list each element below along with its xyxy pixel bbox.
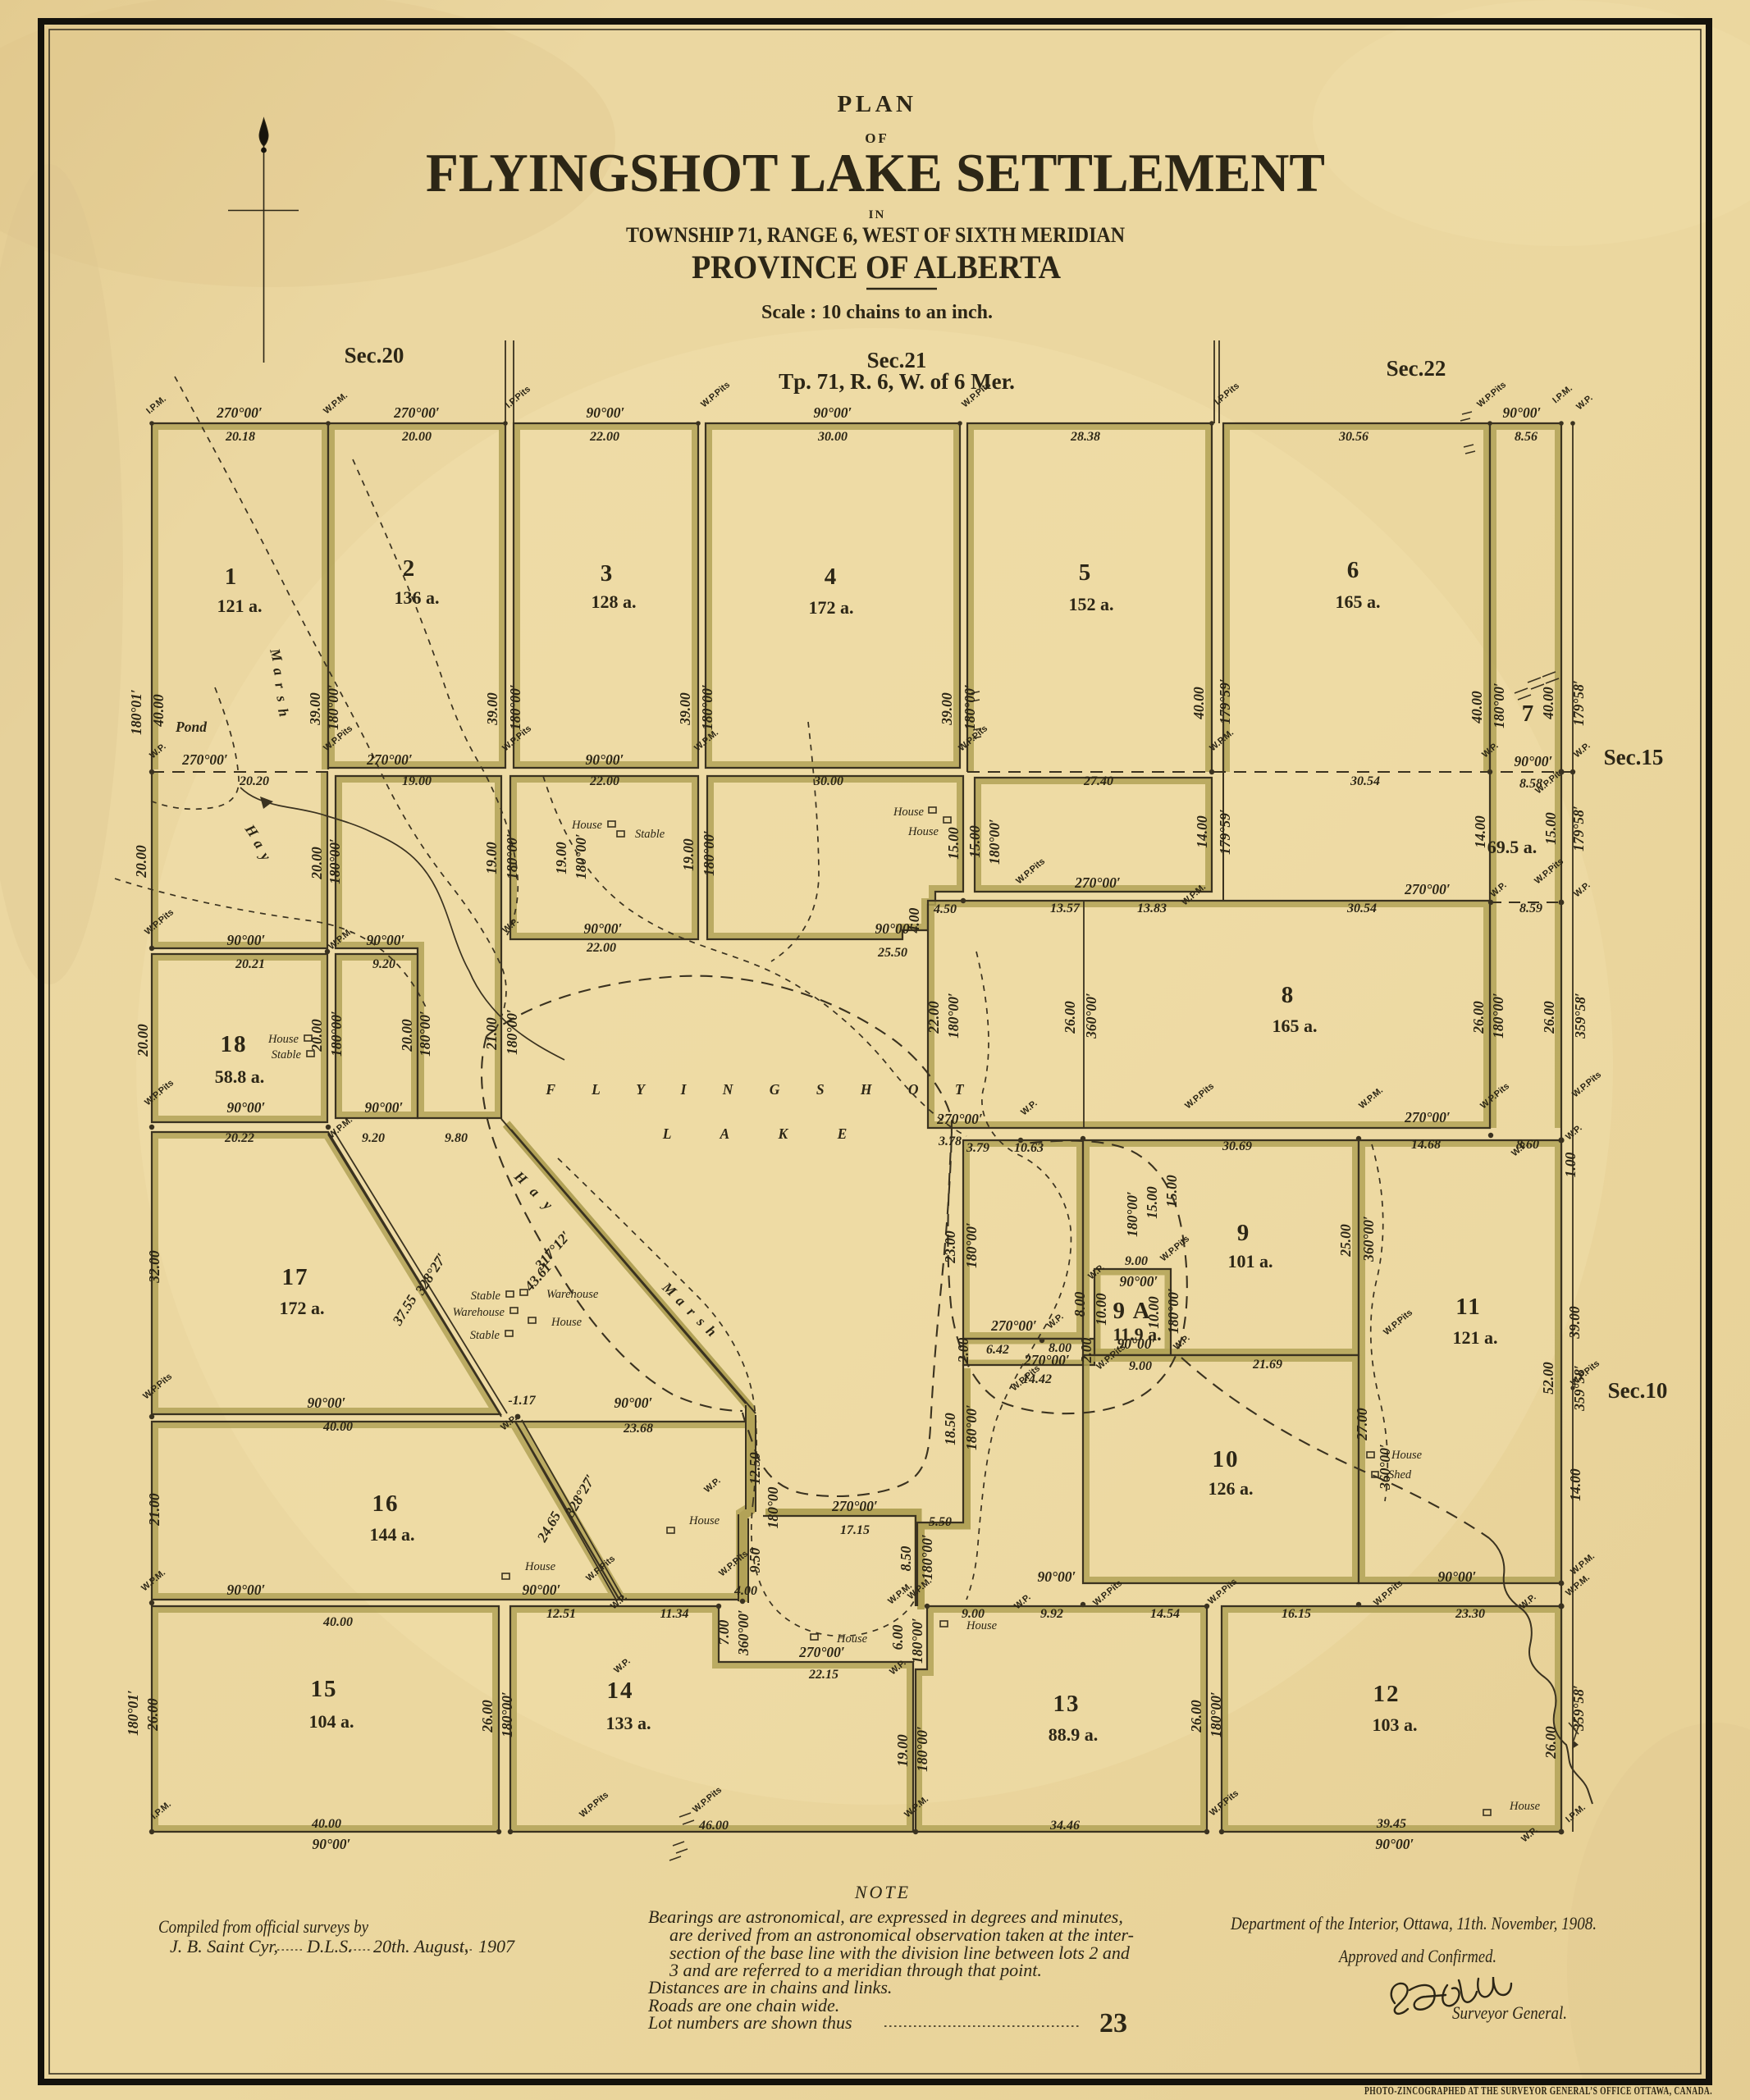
svg-text:19.00: 19.00 xyxy=(894,1734,911,1767)
svg-text:1.00: 1.00 xyxy=(1562,1152,1579,1177)
svg-text:6.00: 6.00 xyxy=(889,1624,906,1650)
svg-text:90°00′: 90°00′ xyxy=(584,920,623,937)
svg-text:90°00′: 90°00′ xyxy=(586,751,624,768)
svg-text:5.50: 5.50 xyxy=(929,1515,952,1529)
svg-text:90°00′: 90°00′ xyxy=(587,404,625,421)
svg-text:180°00′: 180°00′ xyxy=(1165,1288,1181,1334)
svg-text:360°00′: 360°00′ xyxy=(1083,993,1099,1039)
svg-text:25.00: 25.00 xyxy=(1337,1224,1354,1258)
svg-text:15.00: 15.00 xyxy=(945,827,962,860)
svg-text:270°00′: 270°00′ xyxy=(990,1317,1037,1334)
svg-text:9.50: 9.50 xyxy=(747,1547,763,1573)
svg-text:Scale : 10 chains to an inch.: Scale : 10 chains to an inch. xyxy=(761,302,993,323)
svg-text:15.00: 15.00 xyxy=(1542,812,1559,845)
svg-text:26.00: 26.00 xyxy=(1188,1700,1204,1733)
svg-text:180°00′: 180°00′ xyxy=(507,684,523,730)
svg-text:40.00: 40.00 xyxy=(311,1817,341,1831)
svg-text:90°00′: 90°00′ xyxy=(1038,1568,1076,1585)
svg-text:20.00: 20.00 xyxy=(308,847,325,880)
svg-text:39.00: 39.00 xyxy=(939,692,955,726)
svg-text:3.79: 3.79 xyxy=(966,1141,989,1155)
svg-text:360°00′: 360°00′ xyxy=(735,1609,752,1656)
svg-text:180°00′: 180°00′ xyxy=(919,1534,935,1580)
svg-text:180°00′: 180°00′ xyxy=(327,838,343,884)
svg-text:270°00′: 270°00′ xyxy=(216,404,263,421)
svg-text:90°00′: 90°00′ xyxy=(814,404,852,421)
svg-text:8.00: 8.00 xyxy=(1071,1291,1088,1317)
svg-text:34.46: 34.46 xyxy=(1049,1819,1080,1833)
svg-text:180°00′: 180°00′ xyxy=(1124,1191,1140,1237)
svg-text:26.00: 26.00 xyxy=(1541,1001,1557,1034)
svg-text:23.30: 23.30 xyxy=(1455,1607,1485,1621)
svg-text:26.00: 26.00 xyxy=(479,1700,496,1733)
svg-text:90°00′: 90°00′ xyxy=(227,1099,266,1116)
svg-text:8.50: 8.50 xyxy=(898,1545,914,1571)
svg-text:House: House xyxy=(836,1632,868,1646)
svg-text:180°00′: 180°00′ xyxy=(914,1726,930,1772)
svg-text:FLYINGSHOT LAKE SETTLEMENT: FLYINGSHOT LAKE SETTLEMENT xyxy=(426,143,1325,203)
svg-text:23.00: 23.00 xyxy=(942,1230,958,1264)
svg-text:39.00: 39.00 xyxy=(1566,1306,1583,1340)
svg-text:5: 5 xyxy=(1079,559,1093,586)
svg-text:20.21: 20.21 xyxy=(235,957,265,971)
svg-text:Stable: Stable xyxy=(635,828,665,841)
svg-text:19.00: 19.00 xyxy=(483,842,500,874)
svg-text:270°00′: 270°00′ xyxy=(1074,874,1121,891)
svg-text:90°00′: 90°00′ xyxy=(1503,404,1542,421)
svg-text:40.00: 40.00 xyxy=(150,694,167,728)
svg-text:180°00′: 180°00′ xyxy=(1490,993,1506,1039)
svg-text:39.00: 39.00 xyxy=(307,692,323,726)
svg-text:PLAN: PLAN xyxy=(838,91,917,117)
svg-text:3.78: 3.78 xyxy=(938,1134,962,1148)
svg-text:7: 7 xyxy=(1522,701,1536,727)
svg-text:9.20: 9.20 xyxy=(362,1131,385,1145)
svg-text:360°00′: 360°00′ xyxy=(1377,1444,1393,1491)
svg-text:270°00′: 270°00′ xyxy=(936,1111,983,1127)
svg-text:Warehouse: Warehouse xyxy=(453,1306,505,1319)
svg-text:126 a.: 126 a. xyxy=(1209,1478,1254,1499)
svg-text:88.9 a.: 88.9 a. xyxy=(1049,1724,1099,1745)
svg-text:17.15: 17.15 xyxy=(840,1523,870,1537)
svg-text:Sec.15: Sec.15 xyxy=(1604,745,1664,769)
svg-text:1: 1 xyxy=(225,564,239,590)
svg-text:26.00: 26.00 xyxy=(1542,1726,1559,1760)
svg-text:180°00′: 180°00′ xyxy=(573,833,589,879)
svg-text:21.00: 21.00 xyxy=(146,1493,162,1527)
svg-text:L A K E: L A K E xyxy=(662,1125,870,1142)
svg-text:Surveyor General.: Surveyor General. xyxy=(1452,2002,1567,2023)
svg-text:180°00′: 180°00′ xyxy=(499,1691,515,1737)
svg-text:180°00′: 180°00′ xyxy=(417,1011,433,1057)
svg-text:House: House xyxy=(966,1619,998,1632)
svg-text:2.00: 2.00 xyxy=(955,1337,971,1363)
svg-text:152 a.: 152 a. xyxy=(1069,594,1114,614)
svg-text:180°00′: 180°00′ xyxy=(1491,682,1507,728)
svg-text:270°00′: 270°00′ xyxy=(181,751,228,768)
svg-text:15.00: 15.00 xyxy=(1163,1175,1180,1207)
svg-text:40.00: 40.00 xyxy=(322,1420,353,1434)
svg-text:22.15: 22.15 xyxy=(808,1668,838,1682)
svg-text:58.8 a.: 58.8 a. xyxy=(215,1066,265,1087)
svg-text:Department of the Interior, Ot: Department of the Interior, Ottawa, 11th… xyxy=(1230,1913,1597,1933)
svg-text:270°00′: 270°00′ xyxy=(1023,1352,1070,1368)
svg-text:180°00′: 180°00′ xyxy=(962,684,978,730)
svg-text:4.50: 4.50 xyxy=(933,902,957,916)
svg-text:39.00: 39.00 xyxy=(484,692,500,726)
svg-text:180°00′: 180°00′ xyxy=(963,1222,980,1268)
svg-text:90°00′: 90°00′ xyxy=(365,1099,404,1116)
svg-text:House: House xyxy=(1391,1449,1423,1462)
svg-text:14.00: 14.00 xyxy=(1567,1468,1583,1501)
svg-text:Pond: Pond xyxy=(175,719,207,735)
svg-text:4: 4 xyxy=(825,564,838,590)
svg-text:14.00: 14.00 xyxy=(1194,815,1210,848)
svg-text:359°58′: 359°58′ xyxy=(1570,1685,1587,1732)
svg-text:69.5 a.: 69.5 a. xyxy=(1487,837,1538,857)
svg-text:2.00: 2.00 xyxy=(1078,1337,1094,1363)
svg-text:2: 2 xyxy=(403,555,417,582)
svg-text:9.00: 9.00 xyxy=(1129,1359,1152,1373)
svg-text:270°00′: 270°00′ xyxy=(1404,1109,1451,1125)
svg-text:D.L.S.: D.L.S. xyxy=(306,1936,353,1956)
svg-text:4.00: 4.00 xyxy=(733,1584,757,1598)
svg-text:20.20: 20.20 xyxy=(239,774,269,788)
svg-text:270°00′: 270°00′ xyxy=(1404,881,1451,897)
svg-text:22.00: 22.00 xyxy=(589,430,619,444)
svg-text:180°01′: 180°01′ xyxy=(125,1690,141,1736)
svg-text:180°00′: 180°00′ xyxy=(504,833,520,879)
svg-text:20.22: 20.22 xyxy=(224,1131,254,1145)
svg-text:15.00: 15.00 xyxy=(966,825,983,858)
svg-text:20.00: 20.00 xyxy=(401,430,432,444)
svg-text:19.00: 19.00 xyxy=(402,774,432,788)
svg-text:11: 11 xyxy=(1455,1294,1481,1320)
svg-text:180°00′: 180°00′ xyxy=(699,684,715,730)
svg-text:46.00: 46.00 xyxy=(698,1819,729,1833)
svg-text:172 a.: 172 a. xyxy=(809,597,854,618)
svg-text:NOTE: NOTE xyxy=(854,1882,911,1902)
svg-text:180°00′: 180°00′ xyxy=(504,1009,520,1055)
svg-text:20.00: 20.00 xyxy=(399,1019,415,1052)
svg-text:179°59′: 179°59′ xyxy=(1217,678,1233,724)
svg-text:90°00′: 90°00′ xyxy=(227,932,266,948)
svg-text:180°00′: 180°00′ xyxy=(325,684,341,730)
svg-text:House: House xyxy=(524,1560,556,1573)
svg-text:90°00′: 90°00′ xyxy=(1120,1273,1158,1290)
svg-text:21.00: 21.00 xyxy=(483,1017,500,1051)
svg-text:6.42: 6.42 xyxy=(986,1343,1009,1357)
svg-text:7.00: 7.00 xyxy=(715,1619,732,1645)
svg-text:165 a.: 165 a. xyxy=(1336,591,1381,612)
svg-text:15.00: 15.00 xyxy=(1144,1186,1160,1219)
svg-text:13.83: 13.83 xyxy=(1137,902,1167,915)
svg-text:90°00′: 90°00′ xyxy=(615,1395,653,1411)
svg-text:14.68: 14.68 xyxy=(1411,1138,1441,1152)
svg-text:6: 6 xyxy=(1347,557,1361,583)
svg-text:19.00: 19.00 xyxy=(680,838,697,871)
svg-text:16: 16 xyxy=(372,1491,400,1517)
svg-text:90°00′: 90°00′ xyxy=(1376,1836,1414,1852)
svg-text:40.00: 40.00 xyxy=(322,1615,353,1629)
svg-text:121 a.: 121 a. xyxy=(217,596,263,616)
svg-text:90°00′: 90°00′ xyxy=(367,932,405,948)
svg-text:Warehouse: Warehouse xyxy=(546,1288,599,1301)
svg-text:10: 10 xyxy=(1213,1446,1240,1472)
svg-text:30.00: 30.00 xyxy=(813,774,843,788)
svg-text:165 a.: 165 a. xyxy=(1273,1016,1318,1036)
svg-text:12.51: 12.51 xyxy=(546,1607,576,1621)
svg-text:30.00: 30.00 xyxy=(817,430,848,444)
svg-text:1907: 1907 xyxy=(478,1936,515,1956)
svg-text:10.00: 10.00 xyxy=(1093,1293,1109,1326)
svg-text:10.00: 10.00 xyxy=(1145,1296,1162,1329)
svg-text:House: House xyxy=(688,1514,720,1527)
svg-text:9.80: 9.80 xyxy=(445,1131,468,1145)
svg-text:179°58′: 179°58′ xyxy=(1570,806,1587,851)
svg-text:25.50: 25.50 xyxy=(877,946,907,960)
svg-text:Shed: Shed xyxy=(1388,1468,1412,1481)
svg-text:9.00: 9.00 xyxy=(1125,1254,1148,1268)
svg-text:Approved and Confirmed.: Approved and Confirmed. xyxy=(1337,1946,1496,1966)
svg-text:179°59′: 179°59′ xyxy=(1217,809,1233,855)
svg-text:16.15: 16.15 xyxy=(1282,1607,1311,1621)
svg-text:28.38: 28.38 xyxy=(1070,430,1100,444)
svg-text:8: 8 xyxy=(1282,982,1295,1008)
svg-text:13: 13 xyxy=(1053,1691,1081,1717)
svg-text:133 a.: 133 a. xyxy=(606,1713,651,1733)
svg-text:90°00′: 90°00′ xyxy=(308,1395,346,1411)
svg-text:22.00: 22.00 xyxy=(586,941,616,955)
svg-text:House: House xyxy=(893,806,925,819)
svg-text:13.57: 13.57 xyxy=(1050,902,1081,915)
svg-text:39.45: 39.45 xyxy=(1376,1817,1406,1831)
svg-text:90°00′: 90°00′ xyxy=(523,1582,561,1598)
svg-text:House: House xyxy=(907,825,939,838)
svg-text:PROVINCE OF ALBERTA: PROVINCE OF ALBERTA xyxy=(692,249,1061,285)
svg-text:14: 14 xyxy=(607,1678,634,1704)
svg-text:20.18: 20.18 xyxy=(225,430,255,444)
svg-text:270°00′: 270°00′ xyxy=(798,1644,845,1660)
svg-text:20th. August,: 20th. August, xyxy=(373,1936,468,1956)
svg-text:30.56: 30.56 xyxy=(1338,430,1368,444)
svg-text:30.54: 30.54 xyxy=(1350,774,1380,788)
svg-text:103 a.: 103 a. xyxy=(1373,1714,1418,1735)
svg-text:27.40: 27.40 xyxy=(1083,774,1113,788)
svg-text:Sec.10: Sec.10 xyxy=(1608,1378,1668,1403)
svg-text:90°00′: 90°00′ xyxy=(313,1836,351,1852)
svg-text:180°00′: 180°00′ xyxy=(909,1618,925,1664)
svg-text:180°00′: 180°00′ xyxy=(986,819,1003,865)
svg-text:PHOTO-ZINCOGRAPHED AT THE SURV: PHOTO-ZINCOGRAPHED AT THE SURVEYOR GENER… xyxy=(1364,2084,1712,2097)
svg-text:House: House xyxy=(1509,1800,1541,1813)
svg-text:270°00′: 270°00′ xyxy=(393,404,440,421)
svg-text:90°00′: 90°00′ xyxy=(1438,1568,1477,1585)
svg-text:22.00: 22.00 xyxy=(589,774,619,788)
svg-text:32.00: 32.00 xyxy=(146,1250,162,1284)
svg-text:19.00: 19.00 xyxy=(553,842,569,874)
svg-text:-1.17: -1.17 xyxy=(508,1394,536,1408)
svg-text:180°00′: 180°00′ xyxy=(963,1404,980,1450)
svg-text:18.50: 18.50 xyxy=(942,1413,958,1445)
svg-text:270°00′: 270°00′ xyxy=(366,751,413,768)
svg-text:12: 12 xyxy=(1373,1681,1400,1707)
svg-text:9.92: 9.92 xyxy=(1040,1607,1063,1621)
svg-text:3: 3 xyxy=(601,560,615,587)
svg-text:179°58′: 179°58′ xyxy=(1570,680,1587,726)
svg-text:23.68: 23.68 xyxy=(623,1422,653,1436)
svg-text:20.00: 20.00 xyxy=(308,1019,325,1052)
svg-text:144 a.: 144 a. xyxy=(370,1524,415,1545)
svg-text:26.00: 26.00 xyxy=(144,1698,161,1732)
svg-text:House: House xyxy=(267,1033,299,1046)
svg-text:9.20: 9.20 xyxy=(372,957,395,971)
svg-text:52.00: 52.00 xyxy=(1540,1362,1556,1395)
svg-text:172 a.: 172 a. xyxy=(280,1298,325,1318)
svg-text:180°00: 180°00 xyxy=(765,1486,781,1528)
svg-text:270°00′: 270°00′ xyxy=(831,1498,878,1514)
svg-text:360°00′: 360°00′ xyxy=(1360,1216,1377,1262)
svg-text:Compiled from official surveys: Compiled from official surveys by xyxy=(158,1916,368,1937)
svg-text:180°01′: 180°01′ xyxy=(128,689,144,735)
svg-text:8.59: 8.59 xyxy=(1519,902,1542,915)
svg-text:9: 9 xyxy=(1237,1220,1251,1246)
svg-text:104 a.: 104 a. xyxy=(309,1711,354,1732)
svg-text:40.00: 40.00 xyxy=(1190,687,1207,720)
svg-text:128 a.: 128 a. xyxy=(592,591,637,612)
svg-text:22.00: 22.00 xyxy=(925,1001,942,1034)
svg-text:26.00: 26.00 xyxy=(1470,1001,1487,1034)
svg-text:101 a.: 101 a. xyxy=(1228,1251,1273,1271)
svg-text:30.54: 30.54 xyxy=(1346,902,1377,915)
svg-text:90°00′: 90°00′ xyxy=(227,1582,266,1598)
svg-text:14.00: 14.00 xyxy=(1472,815,1488,848)
svg-text:20.00: 20.00 xyxy=(135,1024,151,1057)
svg-text:IN: IN xyxy=(869,208,886,221)
svg-text:180°00′: 180°00′ xyxy=(328,1011,345,1057)
svg-text:Sec.22: Sec.22 xyxy=(1387,356,1446,381)
svg-text:359°58′: 359°58′ xyxy=(1572,993,1588,1039)
svg-text:40.00: 40.00 xyxy=(1540,687,1556,720)
svg-text:House: House xyxy=(571,819,603,832)
svg-text:180°00′: 180°00′ xyxy=(945,993,962,1039)
svg-text:Stable: Stable xyxy=(471,1290,501,1303)
svg-text:Stable: Stable xyxy=(272,1048,302,1061)
svg-text:40.00: 40.00 xyxy=(1469,691,1485,724)
svg-text:27.00: 27.00 xyxy=(1354,1408,1370,1441)
svg-text:180°00′: 180°00′ xyxy=(1208,1691,1224,1737)
svg-text:26.00: 26.00 xyxy=(1062,1001,1078,1034)
svg-text:136 a.: 136 a. xyxy=(395,587,440,608)
svg-text:4.00: 4.00 xyxy=(906,907,922,934)
svg-text:TOWNSHIP 71, RANGE 6, WEST OF: TOWNSHIP 71, RANGE 6, WEST OF SIXTH MERI… xyxy=(626,223,1125,247)
svg-text:21.69: 21.69 xyxy=(1252,1358,1282,1372)
svg-text:30.69: 30.69 xyxy=(1222,1139,1252,1153)
svg-text:House: House xyxy=(551,1316,583,1329)
svg-text:F L Y I N G S H O T: F L Y I N G S H O T xyxy=(545,1081,980,1098)
svg-text:Lot numbers are shown thus: Lot numbers are shown thus xyxy=(647,2012,852,2033)
svg-text:23: 23 xyxy=(1099,2008,1127,2038)
svg-text:121 a.: 121 a. xyxy=(1453,1327,1498,1348)
svg-text:14.54: 14.54 xyxy=(1150,1607,1180,1621)
svg-text:15: 15 xyxy=(311,1676,338,1702)
svg-text:18: 18 xyxy=(221,1031,248,1057)
svg-text:J. B. Saint Cyr,: J. B. Saint Cyr, xyxy=(170,1936,278,1956)
svg-text:20.00: 20.00 xyxy=(133,845,149,879)
svg-text:11.34: 11.34 xyxy=(660,1607,688,1621)
svg-text:10.63: 10.63 xyxy=(1014,1141,1044,1155)
svg-text:17: 17 xyxy=(282,1264,309,1290)
svg-text:39.00: 39.00 xyxy=(677,692,693,726)
svg-text:Stable: Stable xyxy=(470,1329,500,1342)
svg-text:12.50: 12.50 xyxy=(747,1452,763,1485)
svg-text:90°00′: 90°00′ xyxy=(1515,753,1553,769)
svg-text:Sec.20: Sec.20 xyxy=(345,343,404,367)
svg-text:8.56: 8.56 xyxy=(1515,430,1538,444)
svg-text:180°00′: 180°00′ xyxy=(701,830,717,876)
